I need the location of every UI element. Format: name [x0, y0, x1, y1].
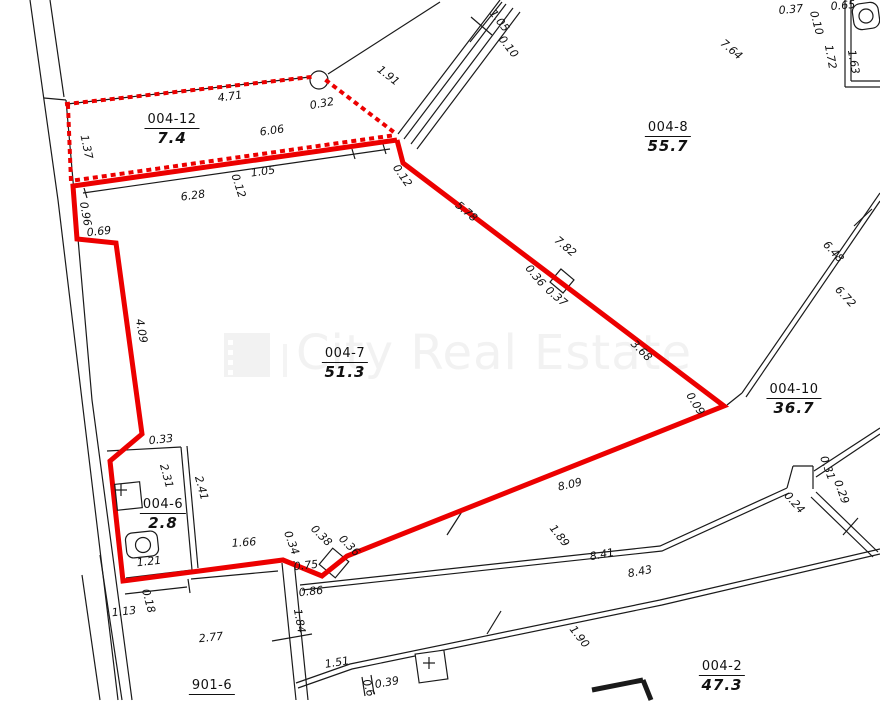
room-label-004-8: 004-855.7	[645, 116, 691, 155]
room-id: 004-6	[140, 497, 186, 514]
wall-line	[125, 587, 187, 594]
dimension-label: 8.09	[556, 475, 583, 493]
dimension-label: 0.37	[778, 2, 804, 17]
room-id: 004-7	[322, 346, 368, 363]
dimension-label: 1.72	[822, 44, 839, 70]
wall-line	[746, 201, 880, 397]
wall-line	[404, 4, 506, 139]
wall-line	[787, 466, 793, 488]
wall-line	[187, 446, 198, 568]
dimension-label: 2.77	[198, 630, 224, 645]
dimension-label: 0.39	[374, 674, 400, 691]
dimension-label: 0.24	[781, 489, 807, 516]
toilet-icon	[851, 1, 880, 30]
wall-line	[282, 563, 296, 700]
cadastral-plan-canvas: 4.710.321.911.376.061.050.126.280.960.69…	[0, 0, 880, 701]
wall-line	[300, 488, 787, 585]
wall-line	[82, 575, 100, 700]
room-id: 004-12	[144, 112, 199, 129]
dimension-label: 0.10	[496, 33, 521, 60]
wall-line	[107, 447, 181, 451]
dimension-label: 4.09	[133, 318, 150, 344]
dimension-label: 1.89	[547, 522, 572, 549]
room-label-004-7: 004-751.3	[322, 342, 368, 381]
wall-line	[298, 554, 880, 688]
room-area: 7.4	[144, 129, 199, 147]
dimension-label: 8.41	[589, 546, 616, 563]
dimension-label: 1.63	[845, 49, 862, 75]
dimension-label: 1.05	[487, 7, 512, 34]
room-area: 51.3	[322, 363, 368, 381]
dimension-label: 7.82	[552, 234, 579, 260]
survey-marker-icon	[415, 650, 448, 683]
wall-line	[383, 144, 386, 154]
wall-line	[302, 493, 789, 590]
room-id: 004-10	[766, 382, 821, 399]
dimension-label: 7.64	[718, 37, 745, 63]
dimension-label: 1.21	[136, 554, 162, 569]
dimension-label: 1.05	[250, 163, 276, 179]
room-area: 55.7	[645, 137, 691, 155]
wall-line	[811, 497, 873, 557]
dimension-label: 0.12	[229, 172, 249, 199]
leased-area-boundary-dotted	[327, 81, 395, 133]
dimension-label: 1.91	[375, 63, 402, 88]
room-label-004-2: 004-247.3	[699, 655, 745, 694]
dimension-label: 8.43	[627, 563, 654, 580]
wall-line	[30, 0, 118, 700]
dimension-label: 4.71	[217, 88, 243, 104]
dimension-label: 0.32	[309, 95, 335, 112]
wall-line	[272, 634, 312, 641]
dimension-label: 0.75	[293, 558, 319, 573]
dimension-label: 1.13	[111, 604, 137, 619]
room-label-004-12: 004-127.4	[144, 108, 199, 147]
sink-icon	[115, 482, 143, 510]
dimension-label: 3.68	[628, 337, 655, 364]
wall-line	[50, 0, 64, 97]
cadastral-plan-page: City Real Estate 4.710.321.911.376.061.0…	[0, 0, 880, 701]
room-area: 36.7	[766, 399, 821, 417]
dimension-label: 0.18	[139, 587, 158, 614]
room-id: 004-2	[699, 659, 745, 676]
wall-line	[100, 555, 122, 700]
dimension-label: 1.84	[291, 608, 308, 634]
wall-line	[417, 12, 520, 149]
thick-wall-line	[592, 680, 643, 690]
dimension-label: 1.66	[231, 535, 256, 550]
dimension-label: 6.48	[820, 238, 846, 265]
dimension-label: 0.34	[281, 529, 302, 556]
room-area: 47.3	[699, 676, 745, 694]
dimension-label: 0.86	[298, 584, 324, 599]
dimension-label: 2.41	[192, 474, 211, 501]
dimension-label: 6.28	[180, 187, 206, 203]
wall-line	[742, 193, 880, 393]
dimension-label: 1.37	[78, 134, 96, 161]
dimension-label: 6.72	[832, 283, 858, 310]
dimension-label: 0.33	[148, 432, 174, 447]
dimension-label: 1.51	[324, 654, 350, 671]
dimension-label: 0.65	[830, 0, 856, 13]
room-id: 901-6	[189, 678, 235, 695]
wall-line	[487, 611, 501, 634]
room-id: 004-8	[645, 120, 691, 137]
room-label-901-6: 901-6	[189, 674, 235, 695]
wall-line	[188, 579, 190, 593]
dimension-label: 2.31	[157, 462, 176, 489]
leased-area-boundary-dotted	[68, 106, 71, 181]
dimension-label: 0.38	[308, 522, 335, 549]
dimension-label: 0.36	[523, 262, 549, 289]
dimension-label: 0.69	[86, 224, 112, 239]
dimension-label: 1.90	[567, 623, 592, 650]
thick-wall-line	[643, 680, 651, 700]
room-area: 2.8	[140, 514, 186, 532]
room-label-004-10: 004-1036.7	[766, 378, 821, 417]
dimension-label: 0.96	[77, 201, 94, 227]
dimension-label: 0.10	[807, 9, 826, 36]
wall-line	[727, 393, 742, 405]
wall-line	[398, 0, 500, 134]
dimension-label: 6.06	[259, 122, 285, 138]
room-label-004-6: 004-62.8	[140, 493, 186, 532]
wall-line	[44, 98, 66, 100]
dimension-label: 0.29	[831, 478, 852, 505]
